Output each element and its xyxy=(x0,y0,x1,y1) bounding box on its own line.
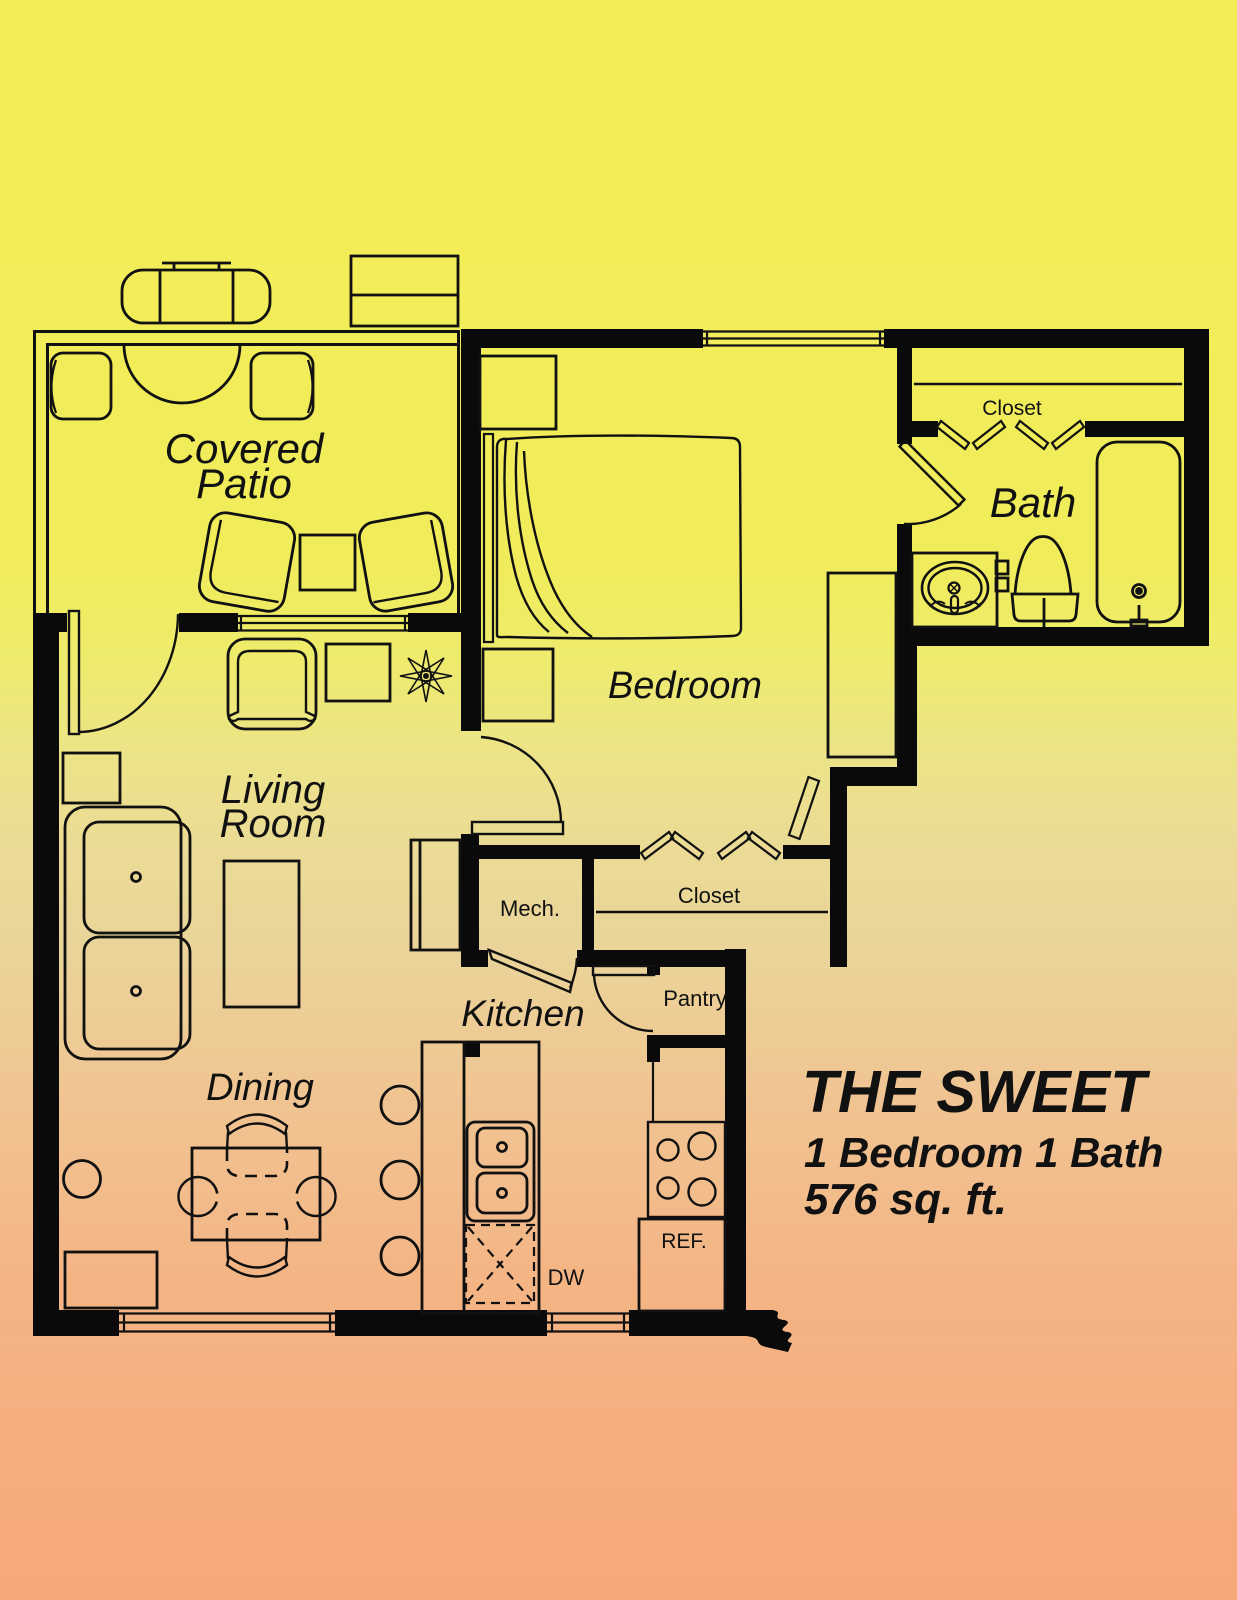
svg-text:THE SWEET: THE SWEET xyxy=(802,1059,1151,1125)
svg-text:1 Bedroom 1 Bath: 1 Bedroom 1 Bath xyxy=(804,1129,1163,1176)
svg-text:REF.: REF. xyxy=(661,1230,707,1253)
svg-text:Bedroom: Bedroom xyxy=(608,665,762,707)
svg-text:Pantry: Pantry xyxy=(663,986,727,1011)
svg-text:DW: DW xyxy=(548,1265,585,1290)
svg-text:Closet: Closet xyxy=(982,397,1042,420)
svg-text:Room: Room xyxy=(220,802,327,846)
svg-text:Dining: Dining xyxy=(206,1067,314,1109)
svg-text:Kitchen: Kitchen xyxy=(461,993,584,1034)
svg-text:Mech.: Mech. xyxy=(500,896,560,921)
svg-text:Patio: Patio xyxy=(196,460,292,507)
svg-text:576 sq. ft.: 576 sq. ft. xyxy=(804,1175,1007,1224)
svg-text:Closet: Closet xyxy=(678,883,740,908)
svg-text:Bath: Bath xyxy=(990,479,1076,526)
